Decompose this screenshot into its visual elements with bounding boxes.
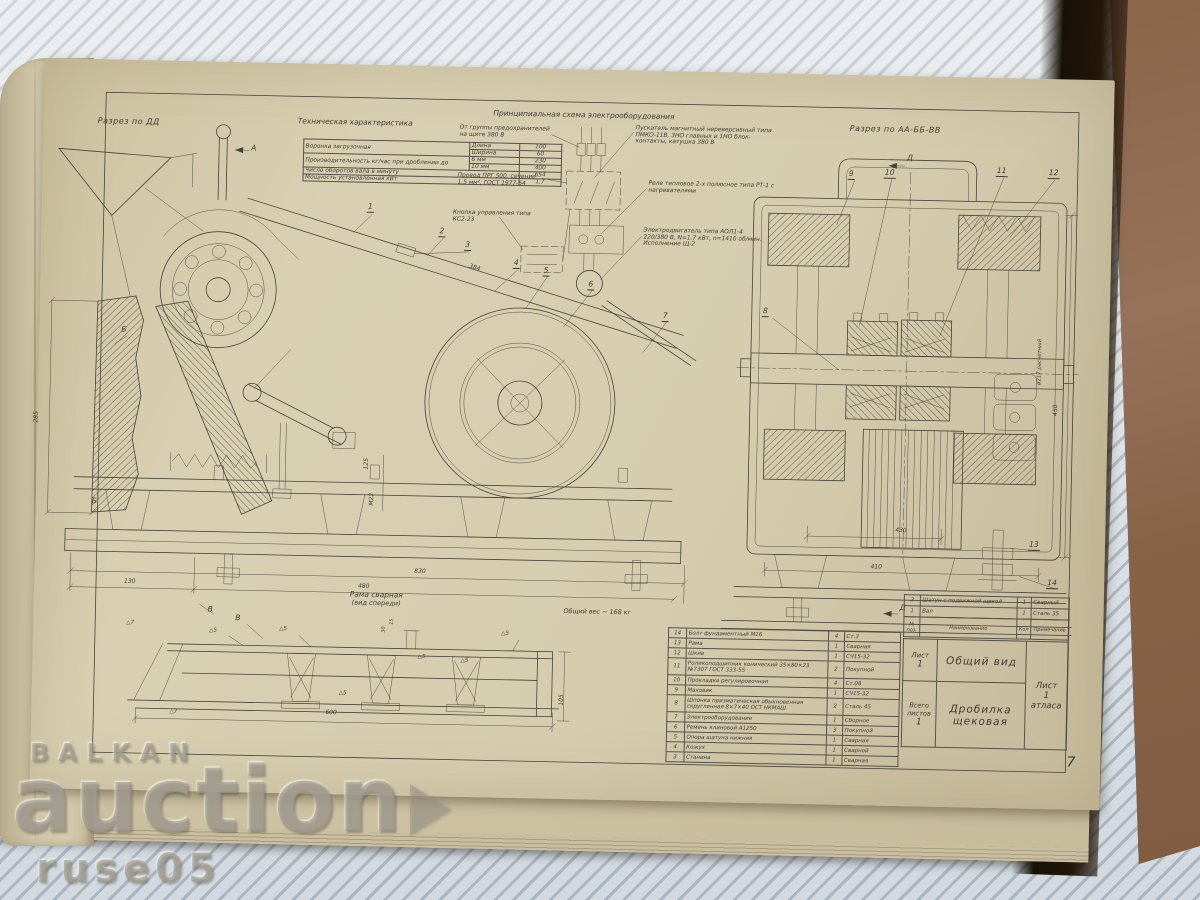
part-qty: 2: [828, 661, 844, 678]
part-num: 3: [666, 752, 684, 762]
marker-v-frame: В: [235, 614, 240, 623]
part-num: 14: [668, 628, 686, 638]
parts-header-qty: Кол: [1017, 619, 1031, 639]
schematic-note-supply: От группы предохранителей на щите 380 В: [459, 125, 551, 140]
dim-600: 600: [325, 710, 337, 717]
dim-217-design: ø217 расчетный: [1036, 339, 1043, 385]
part-qty: 1: [826, 735, 842, 745]
title-block-total-cell: Всего листов 1: [901, 681, 936, 748]
dim-m22: М22: [369, 493, 376, 506]
parts-list-left: 14Болт фундаментный М164Ст.3 13Рама1Свар…: [665, 627, 901, 767]
title-block-sheet-cell: Лист 1: [903, 639, 938, 682]
callout-6: 6: [587, 280, 594, 290]
callout-5: 5: [543, 266, 550, 276]
total-sheets-label: Всего листов: [904, 701, 934, 718]
dim-130: 130: [124, 579, 136, 586]
part-num: 6: [667, 722, 685, 732]
part-qty: 3: [826, 725, 842, 735]
callout-2: 2: [438, 227, 445, 237]
view-name: Общий вид: [937, 639, 1027, 683]
product-name: Дробилка щековая: [935, 681, 1025, 749]
part-num: 8: [667, 695, 685, 712]
dim-125: 125: [364, 458, 371, 470]
watermark-arrow-icon: [410, 784, 452, 836]
part-note: Сталь 45: [843, 698, 899, 716]
part-num: 2: [904, 595, 920, 606]
parts-list-header: № поз. Наименование Кол Примечание: [903, 616, 1069, 640]
part-note: Сварный: [1031, 597, 1069, 609]
atlas-line3: атласа: [1027, 700, 1065, 711]
callout-14: 14: [1046, 579, 1058, 589]
callout-11: 11: [996, 167, 1008, 177]
title-block: Лист 1 Общий вид Лист 1 атласа Всего лис…: [901, 638, 1069, 750]
section-dd-label: Разрез по ДД: [98, 117, 160, 127]
part-num: 12: [668, 648, 686, 658]
schematic-note-wire: Провод ПРГ 500, сечение 1,5 мм², ГОСТ 19…: [457, 173, 543, 188]
schematic-note-button: Кнопка управления типа КС2-23: [453, 210, 543, 225]
marker-d-top: Д: [907, 154, 913, 163]
schematic-note-starter: Пускатель магнитный нереверсивный типа П…: [635, 125, 775, 148]
part-num: 4: [666, 742, 684, 752]
part-qty: 1: [826, 745, 842, 755]
callout-1: 1: [367, 203, 374, 213]
dim-15: 15: [390, 619, 395, 625]
part-qty: 1: [828, 641, 844, 651]
part-qty: 1: [828, 651, 844, 661]
dim-450: 450: [1053, 404, 1060, 416]
callout-10: 10: [884, 169, 896, 179]
front-section-view: [721, 156, 1083, 635]
schematic-note-motor: Электродвигатель типа АОЛ1-4 220/380 В, …: [643, 228, 763, 250]
callout-3: 3: [464, 241, 471, 251]
part-qty: 1: [827, 715, 843, 725]
parts-header-name: Наименование: [920, 617, 1017, 639]
weld-symbol-5: △5: [417, 654, 425, 660]
marker-b-top: Б: [121, 326, 126, 335]
weld-symbol-5: △5: [279, 626, 287, 632]
part-num: 10: [668, 675, 686, 685]
weld-symbol-5: △5: [501, 631, 509, 637]
part-qty: 4: [828, 631, 844, 641]
watermark-auction: auction: [12, 748, 404, 853]
part-qty: 1: [1017, 597, 1031, 608]
weld-symbol-7: △7: [126, 620, 134, 626]
total-weight-note: Общий вес ~ 168 кг: [563, 608, 631, 617]
callout-12: 12: [1048, 169, 1060, 179]
marker-a: А: [251, 144, 256, 153]
weld-symbol-5: △5: [460, 658, 468, 664]
dim-430: 430: [895, 528, 907, 535]
part-num: 9: [667, 685, 685, 695]
callout-13: 13: [1028, 541, 1040, 551]
part-qty: 1: [827, 688, 843, 698]
part-note: Сварная: [842, 755, 898, 766]
welded-frame-view: [127, 622, 571, 732]
watermark-ruse05: ruse05: [36, 846, 221, 892]
dim-830: 830: [414, 569, 426, 576]
marker-v-left: В: [207, 606, 212, 615]
callout-7: 7: [662, 312, 669, 322]
drawing-sheet: Разрез по ДД Разрез по АА-ББ-ВВ Техничес…: [30, 58, 1115, 810]
sheet-value: 1: [905, 659, 935, 670]
weld-symbol-7: △7: [169, 709, 177, 715]
photo-of-open-atlas: Разрез по ДД Разрез по АА-ББ-ВВ Техничес…: [0, 0, 1200, 900]
part-num: 11: [668, 658, 686, 675]
side-section-view: [42, 121, 700, 623]
part-num: 5: [666, 732, 684, 742]
dim-410: 410: [870, 564, 882, 571]
weld-symbol-5: △5: [339, 690, 347, 696]
callout-9: 9: [848, 170, 855, 180]
dim-105: 105: [559, 694, 566, 706]
parts-header-num: № поз.: [904, 617, 920, 637]
marker-b-bottom: Б: [92, 497, 97, 506]
frame-view-sublabel: (вид спереди): [352, 600, 401, 608]
page-number: 7: [1066, 756, 1075, 772]
part-qty: 2: [827, 698, 843, 715]
part-note: Покупной: [844, 661, 900, 679]
dim-285: 285: [34, 411, 41, 423]
part-num: 7: [667, 712, 685, 722]
schematic-note-relay: Реле тепловое 2-х полюсное типа РТ-1 с н…: [648, 181, 778, 197]
part-qty: 1: [826, 755, 842, 765]
callout-8: 8: [762, 307, 769, 317]
atlas-sheet-cell: Лист 1 атласа: [1024, 641, 1068, 750]
part-qty: 4: [827, 678, 843, 688]
weld-symbol-5: △5: [209, 628, 217, 634]
section-aabb-label: Разрез по АА-ББ-ВВ: [850, 125, 941, 136]
dim-30: 30: [382, 626, 387, 632]
total-sheets-value: 1: [904, 717, 934, 728]
part-num: 13: [668, 638, 686, 648]
parts-header-note: Примечание: [1031, 619, 1069, 640]
callout-4: 4: [513, 259, 520, 269]
